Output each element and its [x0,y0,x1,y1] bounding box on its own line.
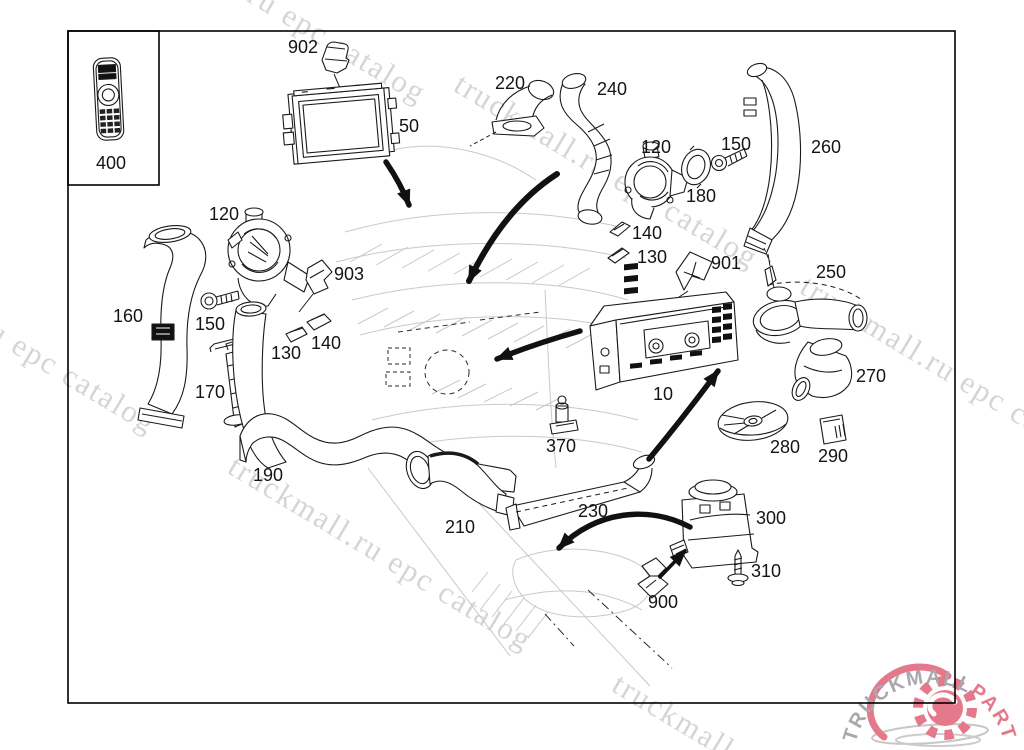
watermark-3: truckmall.ru epc catalog [0,231,163,440]
part-label-290: 290 [818,446,848,466]
part-label-170: 170 [195,382,225,402]
part-label-260: 260 [811,137,841,157]
part-label-140-right: 140 [632,223,662,243]
parts-diagram-page: truckmall.ru epc catalog truckmall.ru ep… [0,0,1024,750]
part-label-250: 250 [816,262,846,282]
part-label-140-left: 140 [311,333,341,353]
part-label-901: 901 [711,253,741,273]
arrow-display-to-dash [386,162,409,205]
part-label-240: 240 [597,79,627,99]
part-label-190: 190 [253,465,283,485]
part-label-370: 370 [546,436,576,456]
part-label-902: 902 [288,37,318,57]
part-label-10: 10 [653,384,673,404]
part-label-150-right: 150 [721,134,751,154]
part-label-900: 900 [648,592,678,612]
elbow-duct-270-drawing [789,336,852,403]
part-label-220: 220 [495,73,525,93]
arrow-radio-to-dash [497,331,580,359]
part-label-310: 310 [751,561,781,581]
part-label-230: 230 [578,501,608,521]
part-label-270: 270 [856,366,886,386]
display-unit-50-drawing [280,82,401,165]
clip-140-left-drawing [307,314,331,330]
arrow-hose-to-dash [469,174,557,281]
clip-130-right-drawing [608,248,629,263]
sensor-370-drawing [550,396,578,434]
part-label-180: 180 [686,186,716,206]
logo-swoosh-gray-2 [896,734,980,746]
clip-130-left-drawing [286,327,307,342]
part-label-210: 210 [445,517,475,537]
blower-120-left-drawing [228,208,310,306]
part-label-130-left: 130 [271,343,301,363]
part-label-50: 50 [399,116,419,136]
card-290-drawing [820,415,846,444]
part-label-120-left: 120 [209,204,239,224]
part-label-400: 400 [96,153,126,173]
part-label-280: 280 [770,437,800,457]
part-label-300: 300 [756,508,786,528]
part-label-150-left: 150 [195,314,225,334]
exploded-parts-diagram: truckmall.ru epc catalog truckmall.ru ep… [0,0,1024,750]
clip-140-right-drawing [610,222,630,236]
pillar-duct-260-drawing [744,61,801,262]
part-label-903: 903 [334,264,364,284]
part-label-120-right: 120 [641,137,671,157]
remote-control-drawing [93,57,124,140]
screw-150-left-drawing [201,291,239,309]
part-label-130-right: 130 [637,247,667,267]
part-label-160: 160 [113,306,143,326]
